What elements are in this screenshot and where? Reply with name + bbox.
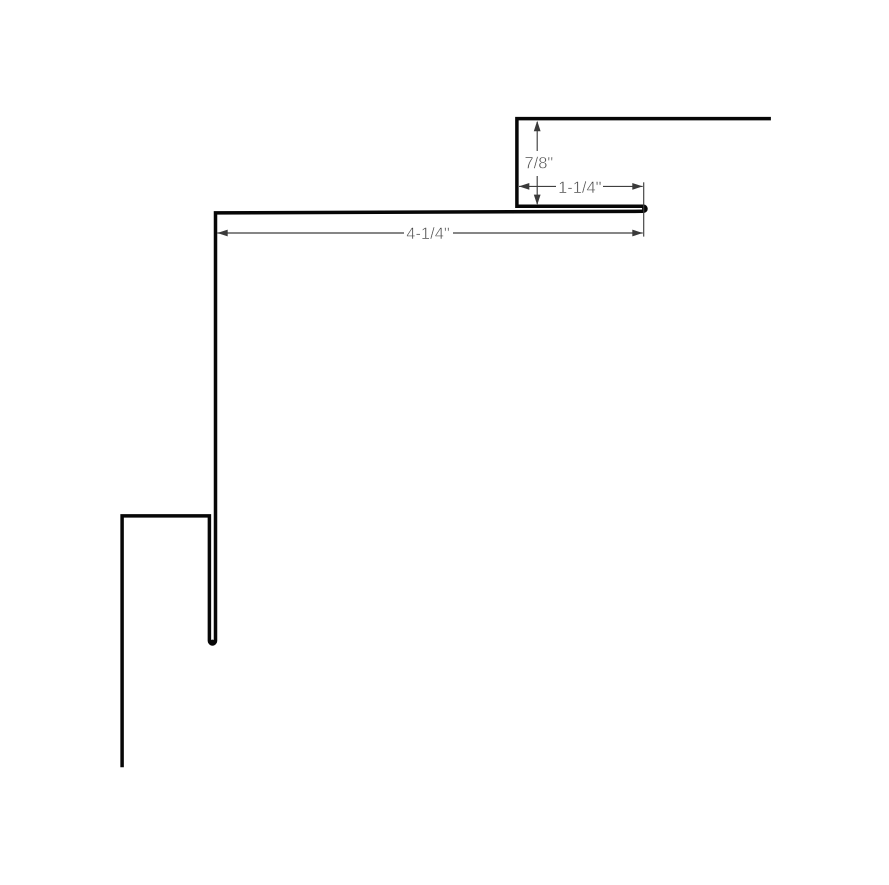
svg-text:4-1/4": 4-1/4"	[406, 225, 450, 243]
svg-text:7/8": 7/8"	[525, 155, 554, 173]
svg-text:1-1/4": 1-1/4"	[558, 179, 602, 197]
